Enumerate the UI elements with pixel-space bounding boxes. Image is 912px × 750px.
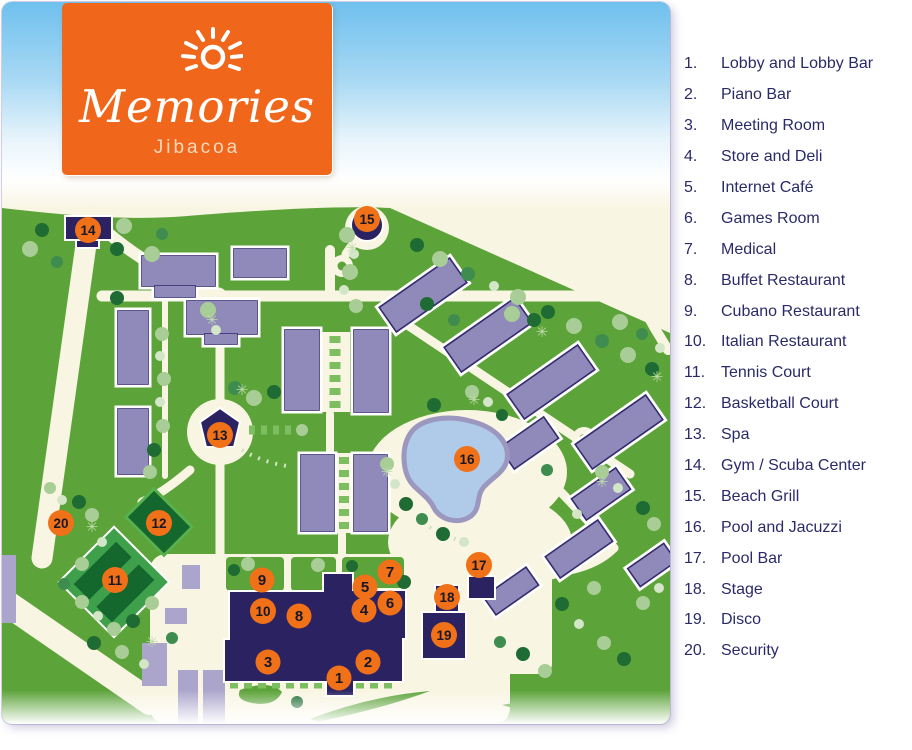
tree-icon xyxy=(228,564,240,576)
legend-item-number: 12. xyxy=(684,395,721,413)
palm-icon: ✳ xyxy=(651,369,664,386)
tree-icon xyxy=(145,596,159,610)
tree-icon xyxy=(147,443,161,457)
brand-name: Memories xyxy=(79,84,315,129)
tree-icon xyxy=(612,314,628,330)
svg-text:3: 3 xyxy=(264,654,272,671)
legend-item-label: Pool and Jacuzzi xyxy=(721,519,910,537)
svg-text:11: 11 xyxy=(108,573,123,588)
legend-item: 13.Spa xyxy=(684,420,910,451)
tree-icon xyxy=(541,305,555,319)
map-marker-8: 8 xyxy=(287,604,312,629)
legend-item-number: 7. xyxy=(684,241,721,259)
tree-icon xyxy=(342,264,358,280)
tree-icon xyxy=(115,645,129,659)
tree-icon xyxy=(541,464,553,476)
legend-item: 5.Internet Café xyxy=(684,173,910,204)
legend-item-number: 3. xyxy=(684,117,721,135)
legend-item: 6.Games Room xyxy=(684,203,910,234)
map-marker-10: 10 xyxy=(250,598,276,624)
building xyxy=(155,286,195,297)
tree-icon xyxy=(339,285,349,295)
tree-icon xyxy=(655,343,665,353)
legend: 1.Lobby and Lobby Bar2.Piano Bar3.Meetin… xyxy=(684,49,910,667)
tree-icon xyxy=(410,238,424,252)
tree-icon xyxy=(510,289,526,305)
building xyxy=(285,330,319,410)
legend-item-number: 9. xyxy=(684,303,721,321)
legend-item-number: 15. xyxy=(684,488,721,506)
map-bottom-fade xyxy=(2,690,670,724)
map-marker-7: 7 xyxy=(378,560,403,585)
tree-icon xyxy=(572,509,582,519)
main-building-complex xyxy=(224,573,406,696)
svg-text:4: 4 xyxy=(360,602,369,619)
tree-icon xyxy=(107,622,121,636)
tree-icon xyxy=(574,619,584,629)
legend-item: 20.Security xyxy=(684,636,910,667)
legend-item: 1.Lobby and Lobby Bar xyxy=(684,49,910,80)
legend-item-number: 16. xyxy=(684,519,721,537)
tree-icon xyxy=(636,501,650,515)
tree-icon xyxy=(595,334,609,348)
tree-icon xyxy=(620,347,636,363)
tree-icon xyxy=(110,242,124,256)
legend-item-number: 4. xyxy=(684,148,721,166)
map-marker-6: 6 xyxy=(378,591,403,616)
building xyxy=(118,409,148,474)
tree-icon xyxy=(636,328,648,340)
palm-icon: ✳ xyxy=(206,312,219,329)
legend-item-number: 6. xyxy=(684,210,721,228)
legend-item-number: 13. xyxy=(684,426,721,444)
palm-icon: ✳ xyxy=(236,382,249,399)
tree-icon xyxy=(346,560,358,572)
legend-item: 2.Piano Bar xyxy=(684,80,910,111)
tree-icon xyxy=(504,306,520,322)
tree-icon xyxy=(75,557,89,571)
legend-item: 4.Store and Deli xyxy=(684,142,910,173)
map-marker-17: 17 xyxy=(466,552,492,578)
legend-item-label: Beach Grill xyxy=(721,488,910,506)
palm-icon: ✳ xyxy=(596,474,609,491)
legend-item-label: Medical xyxy=(721,241,910,259)
legend-item-number: 5. xyxy=(684,179,721,197)
legend-item-number: 14. xyxy=(684,457,721,475)
legend-item: 16.Pool and Jacuzzi xyxy=(684,512,910,543)
map-marker-5: 5 xyxy=(353,575,378,600)
tree-icon xyxy=(494,636,506,648)
building xyxy=(354,330,388,412)
svg-text:8: 8 xyxy=(295,608,303,625)
tree-icon xyxy=(617,652,631,666)
tree-icon xyxy=(246,390,262,406)
svg-text:19: 19 xyxy=(436,628,451,643)
legend-item-label: Basketball Court xyxy=(721,395,910,413)
brand-location: Jibacoa xyxy=(154,137,241,159)
tree-icon xyxy=(58,578,70,590)
tree-icon xyxy=(110,291,124,305)
tree-icon xyxy=(93,611,103,621)
svg-text:9: 9 xyxy=(258,572,266,589)
legend-item: 18.Stage xyxy=(684,574,910,605)
svg-text:5: 5 xyxy=(361,579,369,596)
legend-item-label: Meeting Room xyxy=(721,117,910,135)
map-marker-19: 19 xyxy=(431,622,457,648)
tree-icon xyxy=(349,299,363,313)
svg-text:15: 15 xyxy=(359,212,375,227)
tree-icon xyxy=(399,497,413,511)
legend-item-label: Lobby and Lobby Bar xyxy=(721,55,910,73)
legend-item-label: Games Room xyxy=(721,210,910,228)
tree-icon xyxy=(44,482,56,494)
map-marker-16: 16 xyxy=(454,446,480,472)
tree-icon xyxy=(420,297,434,311)
tree-icon xyxy=(538,664,552,678)
tree-icon xyxy=(636,596,650,610)
legend-item-label: Disco xyxy=(721,611,910,629)
tree-icon xyxy=(483,397,493,407)
building xyxy=(205,334,237,344)
legend-item-label: Gym / Scuba Center xyxy=(721,457,910,475)
legend-item-number: 1. xyxy=(684,55,721,73)
legend-item-label: Pool Bar xyxy=(721,550,910,568)
legend-item-number: 11. xyxy=(684,364,721,382)
svg-text:10: 10 xyxy=(255,604,270,619)
map-marker-9: 9 xyxy=(250,568,275,593)
legend-item: 8.Buffet Restaurant xyxy=(684,265,910,296)
building xyxy=(234,249,286,277)
tree-icon xyxy=(166,632,178,644)
tree-icon xyxy=(144,246,160,262)
tree-icon xyxy=(156,419,170,433)
tree-icon xyxy=(72,495,86,509)
legend-item-number: 18. xyxy=(684,581,721,599)
map-marker-18: 18 xyxy=(434,584,460,610)
tree-icon xyxy=(311,558,325,572)
legend-item-number: 2. xyxy=(684,86,721,104)
tree-icon xyxy=(57,495,67,505)
legend-item: 7.Medical xyxy=(684,234,910,265)
tree-icon xyxy=(555,597,569,611)
map-marker-1: 1 xyxy=(327,666,352,691)
svg-text:18: 18 xyxy=(439,590,455,605)
map-marker-11: 11 xyxy=(102,567,128,593)
tree-icon xyxy=(597,636,611,650)
tree-icon xyxy=(97,537,107,547)
legend-item-label: Piano Bar xyxy=(721,86,910,104)
map-marker-20: 20 xyxy=(48,510,74,536)
building xyxy=(182,565,200,589)
legend-item-label: Cubano Restaurant xyxy=(721,303,910,321)
svg-text:17: 17 xyxy=(471,558,486,573)
tree-icon xyxy=(613,483,623,493)
legend-item-label: Security xyxy=(721,642,910,660)
legend-item: 3.Meeting Room xyxy=(684,111,910,142)
svg-text:1: 1 xyxy=(335,670,343,687)
svg-text:2: 2 xyxy=(364,654,372,671)
palm-icon: ✳ xyxy=(536,324,549,341)
map-marker-14: 14 xyxy=(75,217,101,243)
tree-icon xyxy=(416,513,428,525)
tree-icon xyxy=(566,318,582,334)
legend-item-number: 19. xyxy=(684,611,721,629)
building xyxy=(118,311,148,384)
legend-item-label: Store and Deli xyxy=(721,148,910,166)
legend-item-label: Spa xyxy=(721,426,910,444)
legend-item-number: 10. xyxy=(684,333,721,351)
legend-item-label: Internet Café xyxy=(721,179,910,197)
legend-item-label: Buffet Restaurant xyxy=(721,272,910,290)
tree-icon xyxy=(155,327,169,341)
legend-item: 9.Cubano Restaurant xyxy=(684,296,910,327)
legend-item: 19.Disco xyxy=(684,605,910,636)
tree-icon xyxy=(155,397,165,407)
map-marker-4: 4 xyxy=(352,598,377,623)
map-marker-13: 13 xyxy=(207,422,233,448)
map-marker-2: 2 xyxy=(356,650,381,675)
building xyxy=(301,455,334,531)
tree-icon xyxy=(516,647,530,661)
palm-icon: ✳ xyxy=(381,464,394,481)
legend-item-number: 8. xyxy=(684,272,721,290)
svg-text:6: 6 xyxy=(386,595,394,612)
tree-icon xyxy=(296,424,308,436)
tree-icon xyxy=(139,659,149,669)
tree-icon xyxy=(587,581,601,595)
svg-text:14: 14 xyxy=(80,223,96,238)
building xyxy=(187,301,257,334)
tree-icon xyxy=(126,614,140,628)
legend-item-number: 17. xyxy=(684,550,721,568)
pool-bar-building xyxy=(468,576,495,599)
tree-icon xyxy=(654,583,664,593)
legend-item-number: 20. xyxy=(684,642,721,660)
legend-item-label: Tennis Court xyxy=(721,364,910,382)
legend-item: 15.Beach Grill xyxy=(684,481,910,512)
map-marker-15: 15 xyxy=(354,206,380,232)
legend-item-label: Stage xyxy=(721,581,910,599)
sun-icon xyxy=(179,25,243,71)
palm-icon: ✳ xyxy=(468,392,481,409)
tree-icon xyxy=(427,398,441,412)
tree-icon xyxy=(496,409,508,421)
tree-icon xyxy=(647,517,661,531)
svg-text:12: 12 xyxy=(151,516,166,531)
legend-item: 17.Pool Bar xyxy=(684,543,910,574)
legend-item: 14.Gym / Scuba Center xyxy=(684,451,910,482)
tree-icon xyxy=(157,372,171,386)
tree-icon xyxy=(436,527,450,541)
resort-logo: Memories Jibacoa xyxy=(62,3,332,175)
palm-icon: ✳ xyxy=(86,519,99,536)
palm-icon: ✳ xyxy=(146,634,159,651)
tree-icon xyxy=(156,228,168,240)
tree-icon xyxy=(459,537,469,547)
map-marker-12: 12 xyxy=(146,510,172,536)
tree-icon xyxy=(267,385,281,399)
tree-icon xyxy=(116,218,132,234)
legend-item: 11.Tennis Court xyxy=(684,358,910,389)
tree-icon xyxy=(448,314,460,326)
svg-text:7: 7 xyxy=(386,564,394,581)
tree-icon xyxy=(51,256,63,268)
tree-icon xyxy=(241,557,255,571)
building xyxy=(2,555,16,623)
tree-icon xyxy=(22,241,38,257)
tree-icon xyxy=(143,465,157,479)
tree-icon xyxy=(35,223,49,237)
legend-item: 12.Basketball Court xyxy=(684,389,910,420)
map-marker-3: 3 xyxy=(256,650,281,675)
building xyxy=(165,608,187,624)
tree-icon xyxy=(75,595,89,609)
tree-icon xyxy=(461,267,475,281)
tree-icon xyxy=(87,636,101,650)
tree-icon xyxy=(155,351,165,361)
legend-item-label: Italian Restaurant xyxy=(721,333,910,351)
tree-icon xyxy=(432,251,448,267)
legend-list: 1.Lobby and Lobby Bar2.Piano Bar3.Meetin… xyxy=(684,49,910,667)
svg-text:20: 20 xyxy=(53,516,68,531)
tree-icon xyxy=(489,281,499,291)
legend-item: 10.Italian Restaurant xyxy=(684,327,910,358)
svg-text:16: 16 xyxy=(459,452,475,467)
svg-text:13: 13 xyxy=(212,428,228,443)
resort-map-page: ✳✳✳✳✳✳✳✳✳✳ 12345678910111213141516171819… xyxy=(0,0,912,750)
palm-icon: ✳ xyxy=(346,240,359,257)
